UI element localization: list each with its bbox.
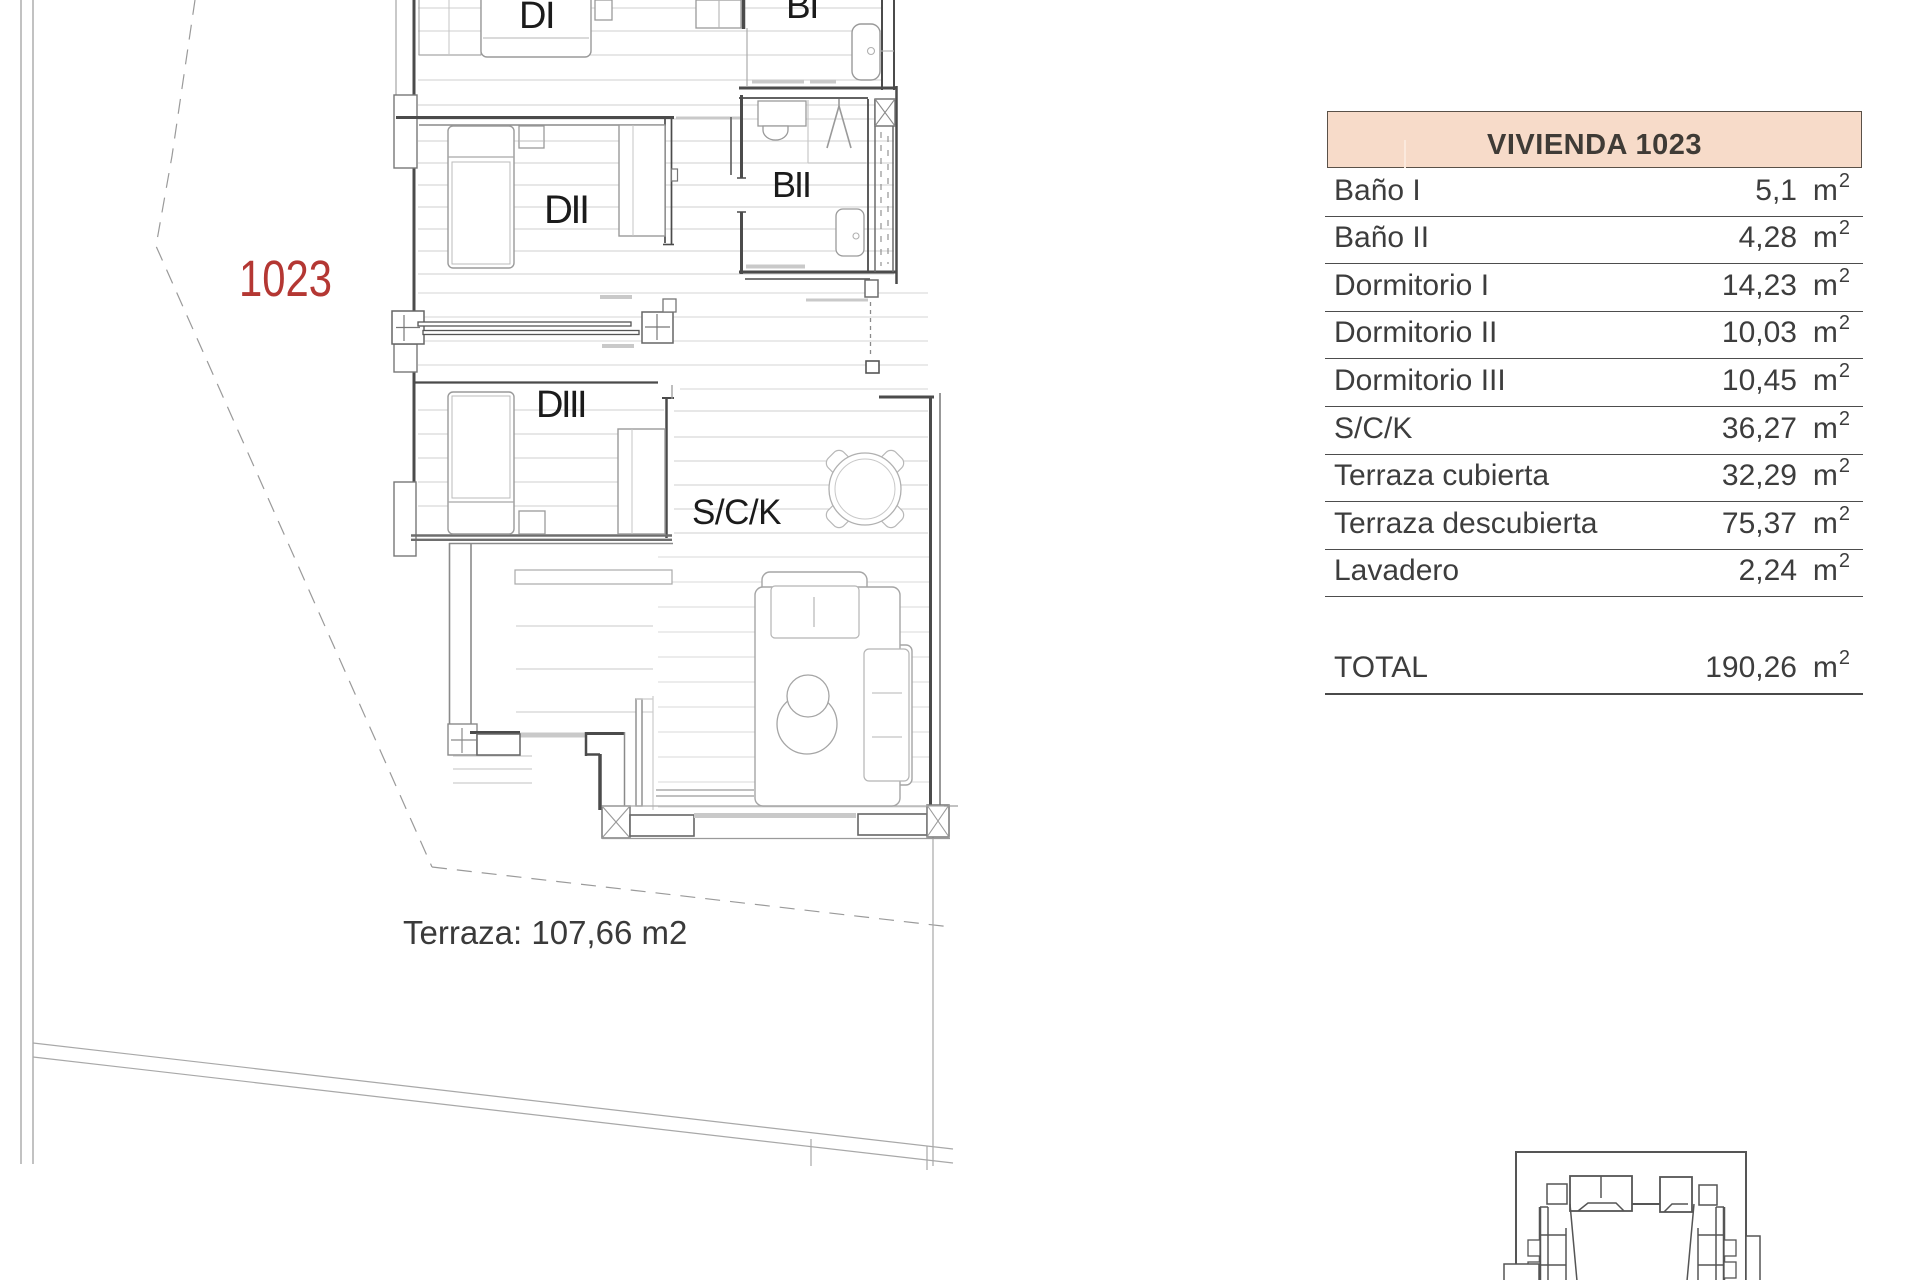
svg-text:DI: DI xyxy=(519,0,554,37)
svg-text:BI: BI xyxy=(786,0,818,26)
svg-text:DIII: DIII xyxy=(536,384,585,426)
svg-text:BII: BII xyxy=(772,164,810,205)
svg-text:S/C/K: S/C/K xyxy=(692,493,781,532)
svg-text:DII: DII xyxy=(544,188,588,232)
